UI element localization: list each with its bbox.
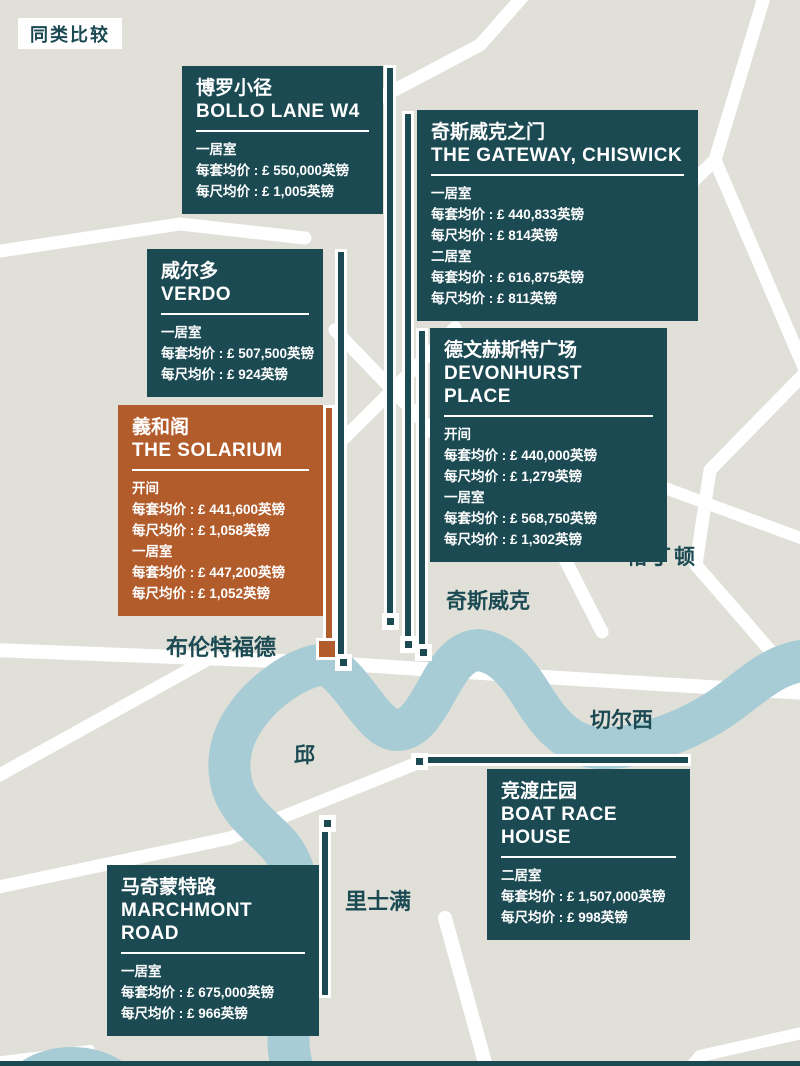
property-name-cn: 威尔多	[161, 260, 309, 283]
property-name-cn: 博罗小径	[196, 77, 369, 100]
property-name-en: VERDO	[161, 283, 309, 306]
callout-gateway: 奇斯威克之门THE GATEWAY, CHISWICK一居室每套均价 : £ 4…	[417, 110, 698, 321]
price-line: 每套均价 : £ 440,000英镑	[444, 445, 653, 466]
property-name-cn: 德文赫斯特广场	[444, 339, 653, 362]
room-type-label: 一居室	[444, 487, 653, 508]
property-name-en: BOAT RACE HOUSE	[501, 803, 676, 849]
price-line: 每套均价 : £ 507,500英镑	[161, 343, 309, 364]
map-marker-devonhurst	[415, 644, 432, 661]
connector-line-devonhurst	[419, 331, 425, 648]
price-line: 每尺均价 : £ 1,058英镑	[132, 520, 309, 541]
price-line: 每尺均价 : £ 811英镑	[431, 288, 684, 309]
price-line: 每套均价 : £ 1,507,000英镑	[501, 886, 676, 907]
connector-line-boatrace	[428, 757, 688, 763]
property-name-cn: 竞渡庄园	[501, 780, 676, 803]
room-type-label: 一居室	[121, 961, 305, 982]
room-type-label: 二居室	[501, 865, 676, 886]
footer-strip	[0, 1061, 800, 1066]
title-divider	[161, 313, 309, 315]
property-name-cn: 马奇蒙特路	[121, 876, 305, 899]
room-type-label: 一居室	[132, 541, 309, 562]
page-title-badge: 同类比较	[18, 18, 122, 49]
map-marker-marchmont	[319, 815, 336, 832]
callout-verdo: 威尔多VERDO一居室每套均价 : £ 507,500英镑每尺均价 : £ 92…	[147, 249, 323, 397]
map-label-brentford: 布伦特福德	[166, 630, 276, 662]
room-type-label: 一居室	[431, 183, 684, 204]
price-line: 每尺均价 : £ 1,052英镑	[132, 583, 309, 604]
map-label-kew: 邱	[294, 739, 315, 769]
callout-solarium: 義和阁THE SOLARIUM开间每套均价 : £ 441,600英镑每尺均价 …	[118, 405, 323, 616]
property-name-en: THE SOLARIUM	[132, 439, 309, 462]
room-type-label: 一居室	[196, 139, 369, 160]
property-name-en: DEVONHURST PLACE	[444, 362, 653, 408]
title-divider	[196, 130, 369, 132]
marker-pip	[387, 618, 394, 625]
connector-line-gateway	[405, 114, 411, 638]
price-line: 每套均价 : £ 440,833英镑	[431, 204, 684, 225]
price-line: 每套均价 : £ 616,875英镑	[431, 267, 684, 288]
callout-marchmont: 马奇蒙特路MARCHMONT ROAD一居室每套均价 : £ 675,000英镑…	[107, 865, 319, 1036]
marker-pip	[416, 758, 423, 765]
price-line: 每尺均价 : £ 924英镑	[161, 364, 309, 385]
price-line: 每套均价 : £ 675,000英镑	[121, 982, 305, 1003]
marker-pip	[319, 641, 335, 657]
price-line: 每尺均价 : £ 814英镑	[431, 225, 684, 246]
price-line: 每套均价 : £ 447,200英镑	[132, 562, 309, 583]
title-divider	[444, 415, 653, 417]
property-name-cn: 奇斯威克之门	[431, 121, 684, 144]
price-line: 每尺均价 : £ 1,302英镑	[444, 529, 653, 550]
property-name-en: BOLLO LANE W4	[196, 100, 369, 123]
map-label-chelsea: 切尔西	[590, 704, 653, 734]
connector-line-bollo	[387, 68, 393, 618]
price-line: 每尺均价 : £ 1,279英镑	[444, 466, 653, 487]
property-name-cn: 義和阁	[132, 416, 309, 439]
map-marker-bollo	[382, 613, 399, 630]
room-type-label: 开间	[132, 478, 309, 499]
property-name-en: THE GATEWAY, CHISWICK	[431, 144, 684, 167]
price-line: 每尺均价 : £ 966英镑	[121, 1003, 305, 1024]
marker-pip	[324, 820, 331, 827]
connector-line-solarium	[326, 408, 332, 640]
callout-bollo: 博罗小径BOLLO LANE W4一居室每套均价 : £ 550,000英镑每尺…	[182, 66, 383, 214]
price-line: 每尺均价 : £ 1,005英镑	[196, 181, 369, 202]
room-type-label: 一居室	[161, 322, 309, 343]
connector-line-marchmont	[322, 830, 328, 995]
price-line: 每套均价 : £ 550,000英镑	[196, 160, 369, 181]
callout-devonhurst: 德文赫斯特广场DEVONHURST PLACE开间每套均价 : £ 440,00…	[430, 328, 667, 562]
comparison-map-infographic: 布伦特福德 奇斯威克 帕丁顿 切尔西 邱 里士满 博罗小径BOLLO LANE …	[0, 0, 800, 1066]
callout-boatrace: 竞渡庄园BOAT RACE HOUSE二居室每套均价 : £ 1,507,000…	[487, 769, 690, 940]
property-name-en: MARCHMONT ROAD	[121, 899, 305, 945]
price-line: 每套均价 : £ 568,750英镑	[444, 508, 653, 529]
title-divider	[132, 469, 309, 471]
map-label-richmond: 里士满	[345, 884, 411, 916]
room-type-label: 二居室	[431, 246, 684, 267]
price-line: 每尺均价 : £ 998英镑	[501, 907, 676, 928]
price-line: 每套均价 : £ 441,600英镑	[132, 499, 309, 520]
marker-pip	[420, 649, 427, 656]
title-divider	[501, 856, 676, 858]
room-type-label: 开间	[444, 424, 653, 445]
map-label-chiswick: 奇斯威克	[446, 585, 530, 615]
connector-line-verdo	[338, 252, 344, 656]
map-marker-solarium	[316, 638, 338, 660]
title-divider	[431, 174, 684, 176]
marker-pip	[340, 659, 347, 666]
marker-pip	[405, 641, 412, 648]
title-divider	[121, 952, 305, 954]
map-marker-boatrace	[411, 753, 428, 770]
